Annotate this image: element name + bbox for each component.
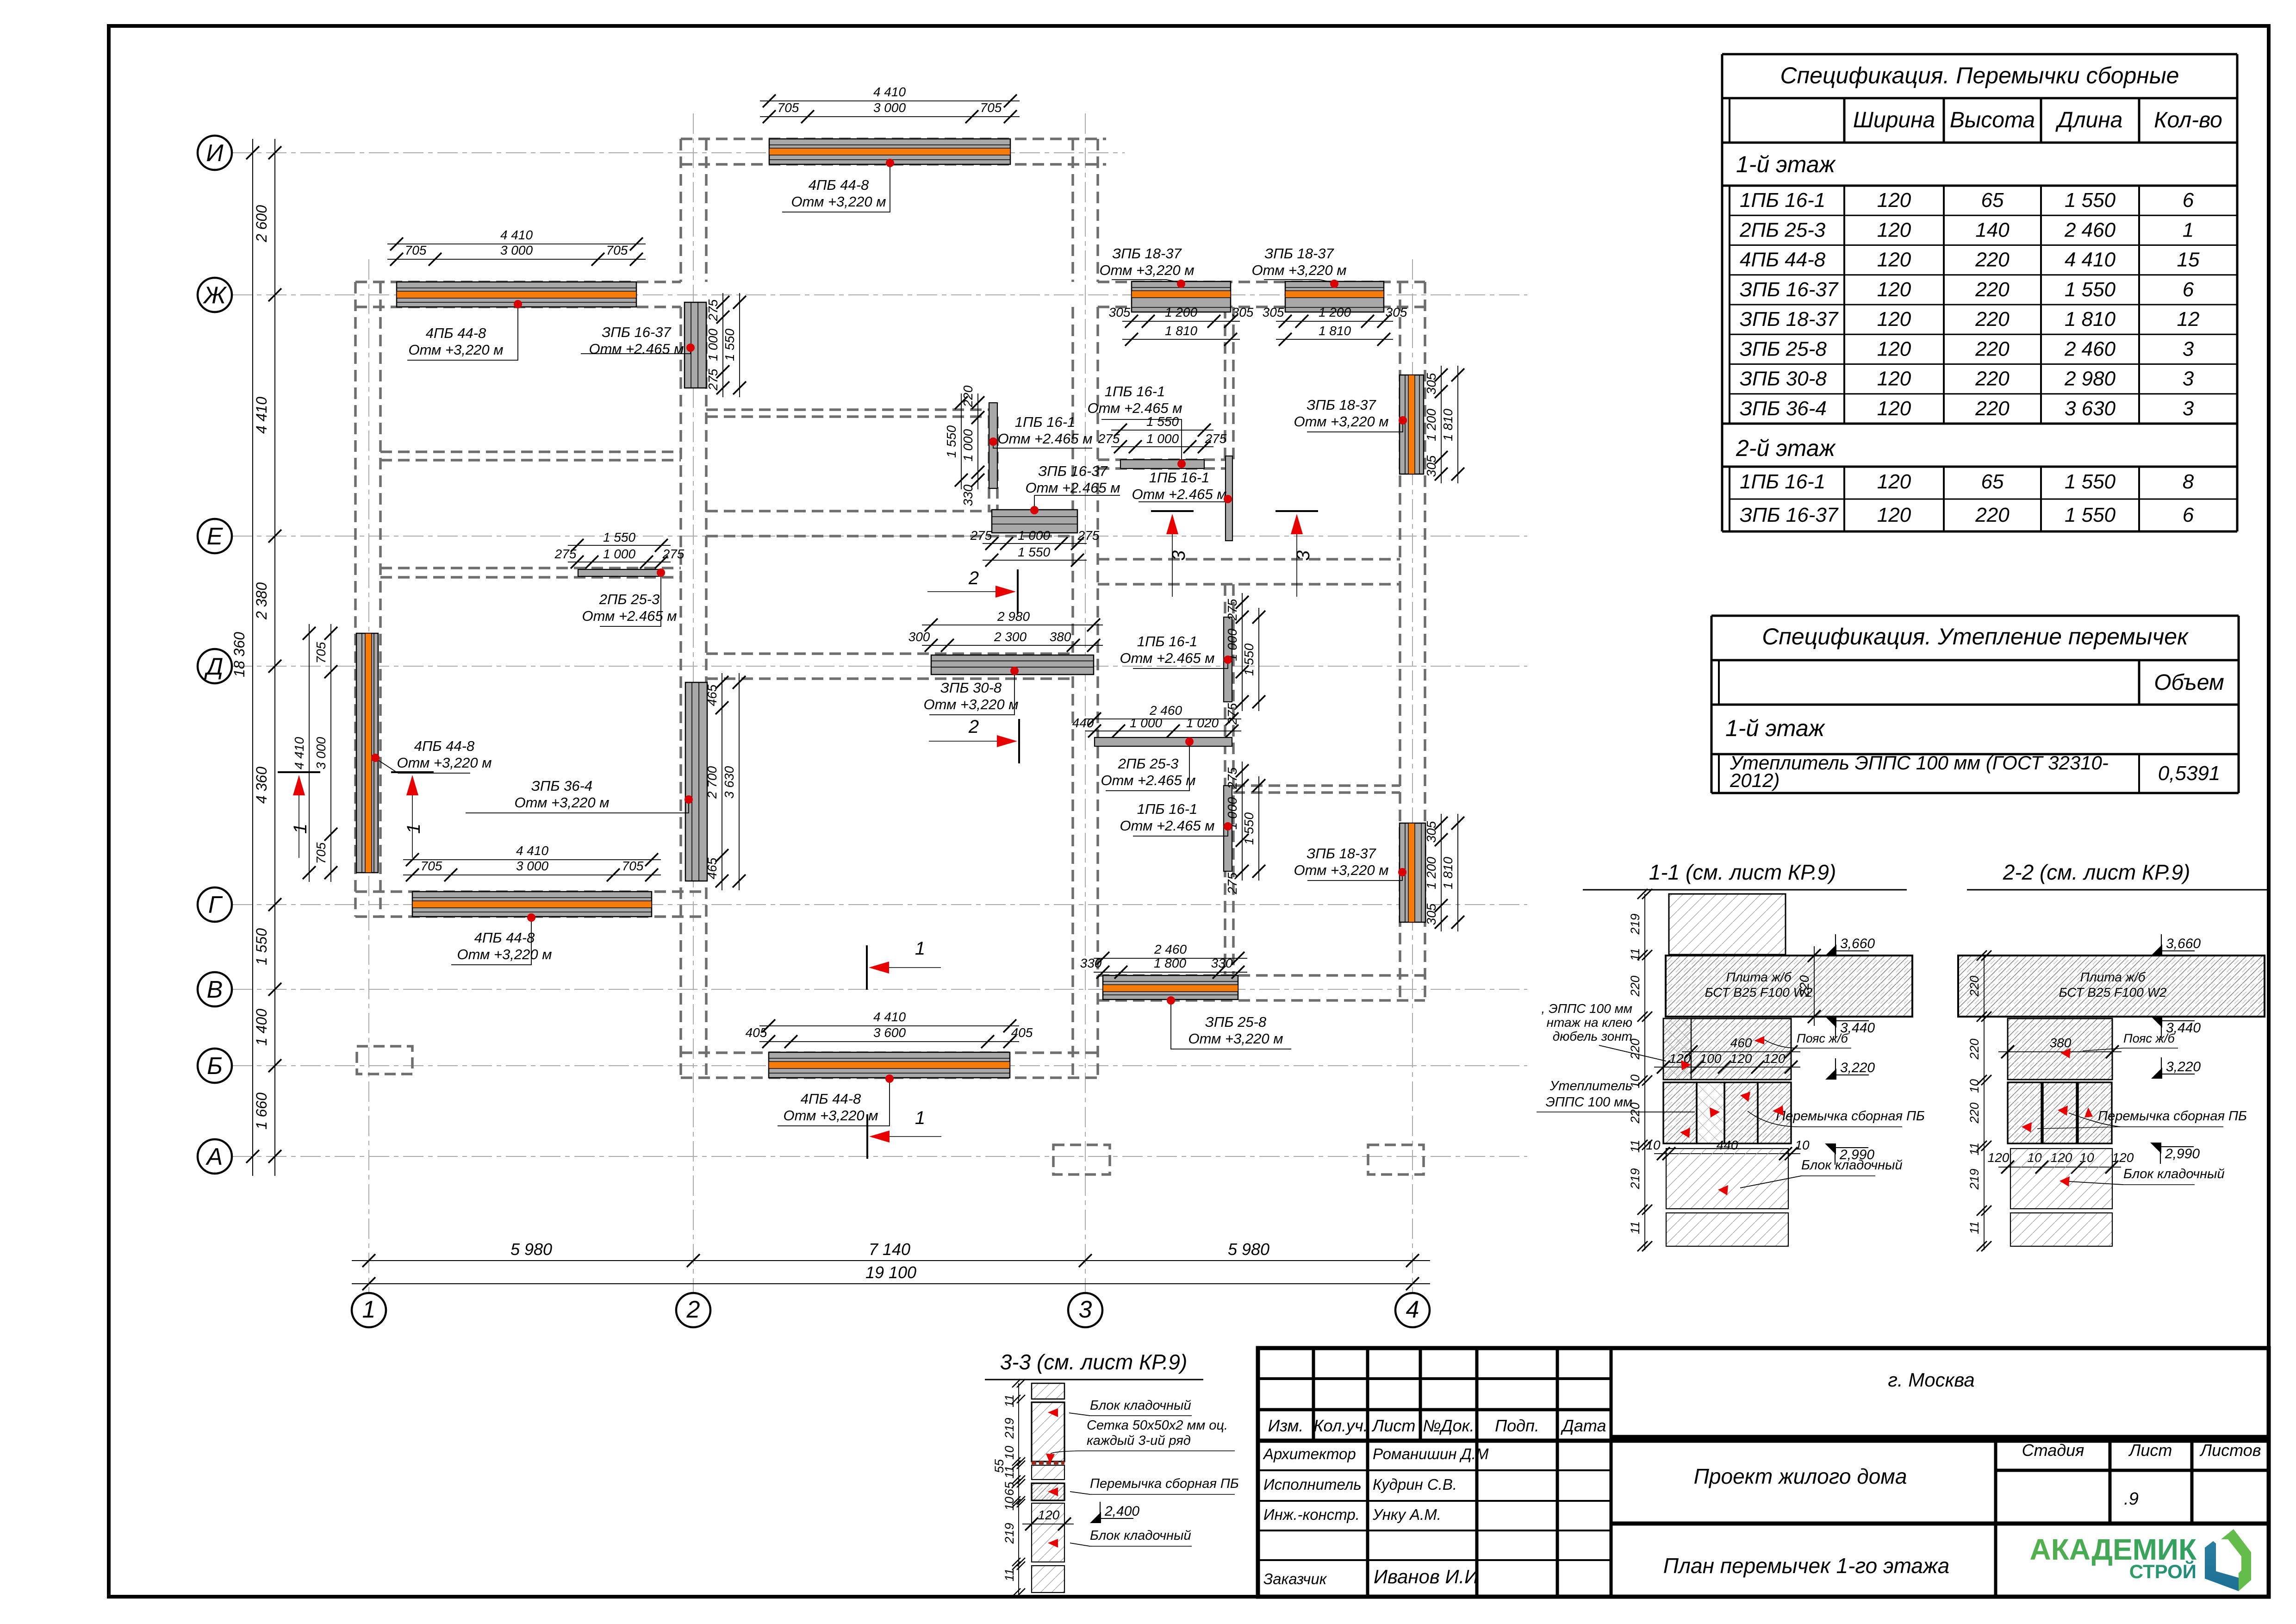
svg-text:120: 120 xyxy=(1764,1051,1786,1066)
svg-text:10: 10 xyxy=(1646,1138,1661,1152)
svg-text:120: 120 xyxy=(1877,308,1911,331)
svg-text:4ПБ 44-8: 4ПБ 44-8 xyxy=(426,325,486,341)
svg-text:Перемычка сборная ПБ: Перемычка сборная ПБ xyxy=(2098,1109,2247,1124)
svg-text:705: 705 xyxy=(405,243,427,257)
svg-text:Подп.: Подп. xyxy=(1495,1416,1539,1435)
svg-text:705: 705 xyxy=(778,100,799,115)
svg-text:305: 305 xyxy=(1424,821,1438,843)
svg-text:11: 11 xyxy=(1002,1466,1016,1479)
svg-text:2 600: 2 600 xyxy=(253,205,270,243)
svg-text:275: 275 xyxy=(1225,767,1239,789)
svg-text:3,660: 3,660 xyxy=(1840,936,1875,951)
svg-text:275: 275 xyxy=(662,547,684,561)
svg-text:1 810: 1 810 xyxy=(1165,324,1197,338)
svg-text:Отм +3,220 м: Отм +3,220 м xyxy=(397,755,492,771)
svg-text:275: 275 xyxy=(1205,431,1227,446)
svg-text:2: 2 xyxy=(686,1296,700,1323)
svg-text:465: 465 xyxy=(705,857,719,879)
svg-text:705: 705 xyxy=(606,243,628,257)
svg-text:Спецификация. Перемычки сбор: Спецификация. Перемычки сборные xyxy=(1780,62,2179,88)
svg-text:120: 120 xyxy=(1877,278,1911,301)
svg-text:220: 220 xyxy=(1975,249,2010,271)
svg-text:2012): 2012) xyxy=(1730,769,1780,791)
svg-text:120: 120 xyxy=(1877,397,1911,420)
svg-text:1 200: 1 200 xyxy=(1165,305,1197,319)
svg-text:1 550: 1 550 xyxy=(2065,189,2116,212)
svg-text:1: 1 xyxy=(2183,219,2194,241)
svg-text:Отм +2.465 м: Отм +2.465 м xyxy=(998,431,1093,447)
svg-text:1ПБ 16-1: 1ПБ 16-1 xyxy=(1105,383,1165,400)
svg-text:140: 140 xyxy=(1975,219,2010,241)
svg-text:4 410: 4 410 xyxy=(292,737,306,769)
svg-text:План перемычек 1-го этажа: План перемычек 1-го этажа xyxy=(1663,1554,1949,1578)
svg-text:Кол.уч.: Кол.уч. xyxy=(1313,1416,1368,1435)
svg-text:1 550: 1 550 xyxy=(1018,545,1050,559)
svg-text:1 000: 1 000 xyxy=(1130,716,1162,730)
svg-text:120: 120 xyxy=(1877,470,1911,493)
svg-text:1 550: 1 550 xyxy=(2065,470,2116,493)
svg-text:ЗПБ 18-37: ЗПБ 18-37 xyxy=(1264,245,1334,262)
svg-text:Отм +2.465 м: Отм +2.465 м xyxy=(1088,400,1182,416)
svg-text:1 000: 1 000 xyxy=(706,329,720,361)
svg-text:1 810: 1 810 xyxy=(2065,308,2116,331)
svg-text:1 810: 1 810 xyxy=(1441,409,1455,441)
svg-text:4: 4 xyxy=(1406,1296,1419,1323)
svg-text:2 300: 2 300 xyxy=(994,630,1027,644)
svg-text:305: 305 xyxy=(1424,903,1438,925)
svg-text:305: 305 xyxy=(1424,373,1438,394)
svg-text:220: 220 xyxy=(1975,337,2010,360)
svg-text:10: 10 xyxy=(1002,1497,1016,1511)
svg-text:1-й этаж: 1-й этаж xyxy=(1736,151,1836,177)
svg-text:Листов: Листов xyxy=(2199,1441,2261,1460)
svg-text:11: 11 xyxy=(1628,1221,1642,1234)
svg-text:1: 1 xyxy=(915,938,925,959)
svg-text:Утеплитель ЭППС 100 мм (ГО: Утеплитель ЭППС 100 мм (ГОСТ 32310- xyxy=(1730,752,2109,774)
svg-text:18 360: 18 360 xyxy=(231,632,248,677)
svg-text:1ПБ 16-1: 1ПБ 16-1 xyxy=(1015,414,1076,430)
svg-text:3 630: 3 630 xyxy=(2065,397,2116,420)
svg-text:305: 305 xyxy=(1232,305,1254,319)
svg-text:2ПБ 25-3: 2ПБ 25-3 xyxy=(1739,219,1826,241)
svg-text:120: 120 xyxy=(1877,189,1911,212)
svg-text:Высота: Высота xyxy=(1950,108,2035,132)
svg-text:3,220: 3,220 xyxy=(2166,1059,2201,1074)
svg-text:Изм.: Изм. xyxy=(1268,1416,1304,1435)
svg-text:1 000: 1 000 xyxy=(1018,528,1050,543)
svg-text:Блок кладочный: Блок кладочный xyxy=(1801,1158,1903,1173)
svg-text:г. Москва: г. Москва xyxy=(1888,1369,1975,1391)
svg-text:10: 10 xyxy=(1002,1446,1016,1460)
svg-text:Д: Д xyxy=(204,653,224,680)
svg-text:Инж.-констр.: Инж.-констр. xyxy=(1263,1506,1360,1523)
svg-text:2ПБ 25-3: 2ПБ 25-3 xyxy=(599,591,660,607)
svg-text:2,400: 2,400 xyxy=(1104,1504,1139,1519)
svg-text:440: 440 xyxy=(1072,716,1094,730)
svg-text:Отм +3,220 м: Отм +3,220 м xyxy=(457,946,552,962)
svg-text:Отм +3,220 м: Отм +3,220 м xyxy=(924,696,1019,712)
svg-text:4ПБ 44-8: 4ПБ 44-8 xyxy=(1740,249,1826,271)
svg-text:1 810: 1 810 xyxy=(1319,324,1351,338)
svg-text:220: 220 xyxy=(1967,975,1981,997)
svg-text:1: 1 xyxy=(290,824,311,834)
svg-text:Отм +3,220 м: Отм +3,220 м xyxy=(515,794,610,811)
svg-text:275: 275 xyxy=(554,547,577,561)
svg-text:3,220: 3,220 xyxy=(1840,1060,1875,1075)
svg-text:Отм +2.465 м: Отм +2.465 м xyxy=(1101,772,1196,788)
svg-text:1: 1 xyxy=(404,824,424,834)
svg-text:460: 460 xyxy=(1730,1036,1752,1050)
svg-text:4 410: 4 410 xyxy=(500,228,533,242)
svg-text:1 550: 1 550 xyxy=(722,329,737,361)
svg-text:120: 120 xyxy=(2112,1150,2134,1165)
svg-text:65: 65 xyxy=(1981,470,2004,493)
svg-text:1 200: 1 200 xyxy=(1319,305,1351,319)
svg-text:3: 3 xyxy=(2183,368,2194,390)
svg-text:1: 1 xyxy=(362,1296,376,1323)
svg-text:3 000: 3 000 xyxy=(873,100,906,115)
svg-text:3: 3 xyxy=(1293,550,1313,561)
svg-text:.9: .9 xyxy=(2124,1489,2139,1509)
svg-text:Утеплитель: Утеплитель xyxy=(1549,1079,1632,1093)
svg-text:ЗПБ 18-37: ЗПБ 18-37 xyxy=(1307,845,1376,862)
svg-text:1: 1 xyxy=(915,1108,925,1128)
svg-text:дюбель зонт: дюбель зонт xyxy=(1553,1029,1632,1043)
svg-text:2 980: 2 980 xyxy=(2064,368,2116,390)
svg-text:Отм +3,220 м: Отм +3,220 м xyxy=(791,194,886,210)
svg-text:1 550: 1 550 xyxy=(1242,812,1256,845)
svg-text:5 980: 5 980 xyxy=(510,1240,552,1259)
svg-text:1ПБ 16-1: 1ПБ 16-1 xyxy=(1740,470,1825,493)
svg-text:380: 380 xyxy=(2050,1036,2072,1050)
svg-text:ЗПБ 30-8: ЗПБ 30-8 xyxy=(1740,368,1827,390)
svg-text:1 550: 1 550 xyxy=(1242,643,1256,676)
svg-text:12: 12 xyxy=(2177,308,2200,331)
svg-text:100: 100 xyxy=(1700,1051,1722,1066)
svg-text:705: 705 xyxy=(622,859,644,873)
svg-text:220: 220 xyxy=(1628,975,1642,997)
svg-text:Стадия: Стадия xyxy=(2022,1441,2084,1460)
svg-text:705: 705 xyxy=(314,642,328,663)
svg-text:Отм +3,220 м: Отм +3,220 м xyxy=(1252,262,1347,278)
svg-text:1-1 (см. лист КР.9): 1-1 (см. лист КР.9) xyxy=(1649,860,1836,884)
svg-text:2 460: 2 460 xyxy=(2064,219,2116,241)
svg-text:8: 8 xyxy=(2183,470,2194,493)
svg-text:каждый 3-ий ряд: каждый 3-ий ряд xyxy=(1087,1433,1191,1448)
svg-text:Блок кладочный: Блок кладочный xyxy=(1090,1528,1191,1543)
svg-text:220: 220 xyxy=(1797,975,1811,997)
svg-text:220: 220 xyxy=(1975,504,2010,526)
svg-text:305: 305 xyxy=(1386,305,1407,319)
svg-text:Г: Г xyxy=(208,892,223,918)
svg-text:4 410: 4 410 xyxy=(2065,249,2116,271)
svg-text:БСТ В25 F100 W2: БСТ В25 F100 W2 xyxy=(1705,985,1813,999)
svg-text:2 980: 2 980 xyxy=(997,609,1030,624)
svg-text:120: 120 xyxy=(1038,1508,1060,1522)
svg-text:Заказчик: Заказчик xyxy=(1263,1570,1327,1587)
svg-text:Перемычка сборная ПБ: Перемычка сборная ПБ xyxy=(1090,1476,1239,1491)
svg-text:330: 330 xyxy=(1080,956,1102,970)
svg-text:2ПБ 25-3: 2ПБ 25-3 xyxy=(1118,756,1179,772)
svg-text:Отм +3,220 м: Отм +3,220 м xyxy=(784,1107,878,1124)
svg-text:11: 11 xyxy=(1628,1140,1642,1153)
svg-text:11: 11 xyxy=(1002,1394,1016,1407)
svg-text:ЗПБ 18-37: ЗПБ 18-37 xyxy=(1112,245,1182,262)
svg-text:ЗПБ 36-4: ЗПБ 36-4 xyxy=(531,778,592,794)
svg-text:БСТ В25 F100 W2: БСТ В25 F100 W2 xyxy=(2059,985,2167,999)
svg-text:275: 275 xyxy=(706,369,720,391)
svg-text:1 000: 1 000 xyxy=(603,547,635,561)
svg-text:1 200: 1 200 xyxy=(1424,857,1438,889)
svg-text:275: 275 xyxy=(1077,528,1100,543)
svg-text:11: 11 xyxy=(1967,1143,1981,1156)
svg-text:11: 11 xyxy=(1967,1221,1981,1234)
svg-text:330: 330 xyxy=(1211,956,1233,970)
svg-text:1 550: 1 550 xyxy=(253,928,270,965)
svg-text:3 630: 3 630 xyxy=(722,766,736,799)
svg-text:Отм +2.465 м: Отм +2.465 м xyxy=(1026,480,1120,496)
svg-text:Отм +2.465 м: Отм +2.465 м xyxy=(1132,486,1227,502)
svg-text:2 460: 2 460 xyxy=(2064,337,2116,360)
svg-text:Иванов И.И: Иванов И.И xyxy=(1374,1566,1479,1587)
svg-text:Романишин Д.М: Романишин Д.М xyxy=(1373,1445,1489,1462)
svg-text:Блок кладочный: Блок кладочный xyxy=(1090,1398,1191,1413)
svg-text:3: 3 xyxy=(1169,550,1189,561)
svg-text:ЗПБ 18-37: ЗПБ 18-37 xyxy=(1307,397,1376,413)
svg-text:Отм +3,220 м: Отм +3,220 м xyxy=(1100,262,1195,278)
svg-text:15: 15 xyxy=(2177,249,2200,271)
svg-text:Кол-во: Кол-во xyxy=(2154,108,2222,132)
svg-text:Архитектор: Архитектор xyxy=(1263,1445,1356,1462)
svg-text:Сетка 50х50х2 мм оц.: Сетка 50х50х2 мм оц. xyxy=(1087,1418,1228,1433)
svg-text:4 410: 4 410 xyxy=(873,1010,906,1024)
svg-text:220: 220 xyxy=(1975,397,2010,420)
svg-text:275: 275 xyxy=(1225,703,1239,725)
svg-text:1 550: 1 550 xyxy=(2065,504,2116,526)
svg-text:ЗПБ 16-37: ЗПБ 16-37 xyxy=(1038,463,1108,479)
svg-text:4 410: 4 410 xyxy=(253,397,270,434)
svg-text:3: 3 xyxy=(1079,1296,1092,1323)
svg-text:4ПБ 44-8: 4ПБ 44-8 xyxy=(809,177,869,193)
svg-text:219: 219 xyxy=(1002,1523,1016,1544)
svg-text:220: 220 xyxy=(1975,368,2010,390)
svg-text:Перемычка сборная ПБ: Перемычка сборная ПБ xyxy=(1776,1109,1925,1124)
svg-text:330: 330 xyxy=(961,484,975,506)
svg-text:Отм +3,220 м: Отм +3,220 м xyxy=(1294,413,1389,430)
svg-text:305: 305 xyxy=(1109,305,1131,319)
svg-text:1 000: 1 000 xyxy=(1146,431,1179,446)
svg-text:ЗПБ 25-8: ЗПБ 25-8 xyxy=(1740,337,1827,360)
svg-text:300: 300 xyxy=(908,630,930,644)
svg-text:Спецификация. Утепление пере: Спецификация. Утепление перемычек xyxy=(1762,624,2189,650)
svg-text:3-3 (см. лист КР.9): 3-3 (см. лист КР.9) xyxy=(1000,1350,1188,1374)
svg-text:220: 220 xyxy=(1975,308,2010,331)
svg-text:, ЭППС 100 мм: , ЭППС 100 мм xyxy=(1542,1001,1632,1016)
svg-text:3,660: 3,660 xyxy=(2166,936,2201,951)
svg-text:305: 305 xyxy=(1424,455,1438,477)
svg-text:4 410: 4 410 xyxy=(873,85,906,99)
svg-text:1 550: 1 550 xyxy=(944,425,958,458)
svg-text:Отм +2.465 м: Отм +2.465 м xyxy=(582,608,677,624)
svg-text:2 460: 2 460 xyxy=(1154,942,1187,956)
svg-text:Пояс ж/б: Пояс ж/б xyxy=(2123,1031,2175,1045)
svg-text:220: 220 xyxy=(1967,1038,1981,1060)
svg-text:220: 220 xyxy=(961,385,975,407)
svg-text:Плита ж/б: Плита ж/б xyxy=(2080,970,2146,984)
svg-text:7 140: 7 140 xyxy=(869,1240,910,1259)
svg-text:Ж: Ж xyxy=(202,282,227,309)
svg-text:705: 705 xyxy=(314,842,328,864)
svg-text:219: 219 xyxy=(1628,913,1642,935)
svg-text:Пояс ж/б: Пояс ж/б xyxy=(1797,1031,1848,1045)
svg-text:Дата: Дата xyxy=(1561,1416,1606,1435)
svg-text:4ПБ 44-8: 4ПБ 44-8 xyxy=(801,1091,861,1107)
svg-text:0,5391: 0,5391 xyxy=(2158,762,2221,785)
svg-text:705: 705 xyxy=(421,859,442,873)
svg-text:Отм +3,220 м: Отм +3,220 м xyxy=(1188,1031,1283,1047)
svg-text:219: 219 xyxy=(1002,1418,1016,1439)
svg-text:220: 220 xyxy=(1967,1102,1981,1124)
svg-text:1ПБ 16-1: 1ПБ 16-1 xyxy=(1137,633,1198,650)
svg-text:4ПБ 44-8: 4ПБ 44-8 xyxy=(414,738,475,754)
svg-text:120: 120 xyxy=(1877,219,1911,241)
svg-text:В: В xyxy=(207,976,223,1003)
svg-text:Отм +3,220 м: Отм +3,220 м xyxy=(409,342,504,358)
svg-text:405: 405 xyxy=(746,1025,767,1040)
svg-text:1ПБ 16-1: 1ПБ 16-1 xyxy=(1740,189,1825,212)
svg-text:220: 220 xyxy=(1975,278,2010,301)
svg-text:Длина: Длина xyxy=(2055,108,2123,132)
svg-text:3 000: 3 000 xyxy=(516,859,548,873)
svg-text:1ПБ 16-1: 1ПБ 16-1 xyxy=(1137,801,1198,817)
svg-text:нтаж на клею: нтаж на клею xyxy=(1547,1015,1632,1030)
svg-text:5 980: 5 980 xyxy=(1228,1240,1269,1259)
svg-text:1 550: 1 550 xyxy=(2065,278,2116,301)
svg-text:705: 705 xyxy=(980,100,1002,115)
svg-text:11: 11 xyxy=(1002,1568,1016,1581)
svg-text:305: 305 xyxy=(1263,305,1284,319)
svg-text:И: И xyxy=(206,140,224,167)
svg-text:Е: Е xyxy=(207,523,224,550)
svg-text:ЗПБ 18-37: ЗПБ 18-37 xyxy=(1740,308,1839,331)
svg-text:1ПБ 16-1: 1ПБ 16-1 xyxy=(1149,469,1210,486)
svg-text:219: 219 xyxy=(1967,1168,1981,1190)
svg-text:2 700: 2 700 xyxy=(705,766,719,799)
svg-text:ЗПБ 30-8: ЗПБ 30-8 xyxy=(940,680,1002,696)
svg-text:Плита ж/б: Плита ж/б xyxy=(1726,970,1792,984)
svg-text:1 660: 1 660 xyxy=(253,1093,270,1130)
svg-text:Отм +2.465 м: Отм +2.465 м xyxy=(1120,818,1215,834)
svg-text:3 000: 3 000 xyxy=(314,737,328,769)
svg-text:2-2 (см. лист КР.9): 2-2 (см. лист КР.9) xyxy=(2003,860,2190,884)
svg-text:А: А xyxy=(205,1143,223,1170)
svg-text:Лист: Лист xyxy=(2128,1441,2172,1460)
svg-text:ЗПБ 16-37: ЗПБ 16-37 xyxy=(602,324,672,340)
svg-text:465: 465 xyxy=(705,684,719,706)
svg-text:120: 120 xyxy=(1988,1150,2010,1165)
svg-text:Кудрин С.В.: Кудрин С.В. xyxy=(1373,1476,1457,1493)
svg-text:120: 120 xyxy=(1877,249,1911,271)
svg-text:2,990: 2,990 xyxy=(2165,1146,2200,1162)
svg-text:1 550: 1 550 xyxy=(1146,414,1179,429)
svg-text:19 100: 19 100 xyxy=(865,1263,916,1282)
svg-text:Ширина: Ширина xyxy=(1853,108,1935,132)
svg-text:Б: Б xyxy=(207,1053,223,1080)
svg-text:219: 219 xyxy=(1628,1168,1642,1189)
svg-text:Объем: Объем xyxy=(2154,670,2224,695)
svg-text:1 800: 1 800 xyxy=(1154,956,1186,970)
svg-text:380: 380 xyxy=(1050,630,1071,644)
svg-text:4ПБ 44-8: 4ПБ 44-8 xyxy=(474,930,535,946)
svg-text:120: 120 xyxy=(1877,368,1911,390)
svg-text:3 600: 3 600 xyxy=(873,1025,906,1040)
svg-text:65: 65 xyxy=(1981,189,2004,212)
svg-text:Лист: Лист xyxy=(1372,1416,1416,1435)
svg-text:65: 65 xyxy=(1002,1481,1016,1496)
svg-text:275: 275 xyxy=(1098,431,1120,446)
svg-text:ЗПБ 25-8: ЗПБ 25-8 xyxy=(1205,1014,1267,1030)
svg-text:1 020: 1 020 xyxy=(1186,716,1219,730)
svg-text:2: 2 xyxy=(968,717,979,737)
svg-text:275: 275 xyxy=(706,299,720,321)
svg-text:275: 275 xyxy=(1225,872,1239,894)
svg-text:4 410: 4 410 xyxy=(516,843,548,858)
svg-text:Исполнитель: Исполнитель xyxy=(1263,1476,1362,1493)
svg-text:ЭППС 100 мм: ЭППС 100 мм xyxy=(1546,1095,1632,1110)
svg-text:Унку А.М.: Унку А.М. xyxy=(1372,1506,1441,1523)
svg-text:ЗПБ 36-4: ЗПБ 36-4 xyxy=(1740,397,1827,420)
svg-text:120: 120 xyxy=(1877,337,1911,360)
svg-text:1-й этаж: 1-й этаж xyxy=(1725,715,1826,741)
svg-text:11: 11 xyxy=(1628,948,1642,961)
svg-text:ЗПБ 16-37: ЗПБ 16-37 xyxy=(1740,278,1839,301)
svg-text:275: 275 xyxy=(1225,599,1239,621)
svg-text:10: 10 xyxy=(1795,1138,1810,1152)
svg-text:1 550: 1 550 xyxy=(603,530,635,544)
svg-text:1 200: 1 200 xyxy=(1424,409,1438,441)
svg-text:№Док.: №Док. xyxy=(1423,1416,1474,1435)
svg-text:Отм +2.465 м: Отм +2.465 м xyxy=(589,341,684,357)
svg-text:1 000: 1 000 xyxy=(961,429,975,462)
svg-text:405: 405 xyxy=(1011,1025,1033,1040)
svg-text:6: 6 xyxy=(2183,504,2194,526)
svg-text:1 810: 1 810 xyxy=(1441,857,1455,889)
svg-text:3: 3 xyxy=(2183,397,2194,420)
svg-text:2 380: 2 380 xyxy=(253,582,270,620)
svg-text:2: 2 xyxy=(968,568,979,588)
svg-text:4 360: 4 360 xyxy=(253,767,270,804)
svg-text:120: 120 xyxy=(1877,504,1911,526)
svg-text:10: 10 xyxy=(1967,1079,1981,1093)
svg-text:СТРОЙ: СТРОЙ xyxy=(2129,1560,2196,1582)
svg-text:6: 6 xyxy=(2183,189,2194,212)
svg-text:1 400: 1 400 xyxy=(253,1009,270,1046)
svg-text:Проект жилого дома: Проект жилого дома xyxy=(1694,1464,1907,1488)
svg-text:2-й этаж: 2-й этаж xyxy=(1736,435,1836,461)
svg-text:Отм +3,220 м: Отм +3,220 м xyxy=(1294,862,1389,878)
svg-text:6: 6 xyxy=(2183,278,2194,301)
svg-text:275: 275 xyxy=(970,528,992,543)
svg-text:ЗПБ 16-37: ЗПБ 16-37 xyxy=(1740,504,1839,526)
svg-text:3: 3 xyxy=(2183,337,2194,360)
svg-text:3 000: 3 000 xyxy=(500,243,533,257)
svg-text:120: 120 xyxy=(1730,1051,1752,1066)
svg-text:Блок кладочный: Блок кладочный xyxy=(2123,1167,2225,1181)
svg-text:Отм +2.465 м: Отм +2.465 м xyxy=(1120,650,1215,666)
